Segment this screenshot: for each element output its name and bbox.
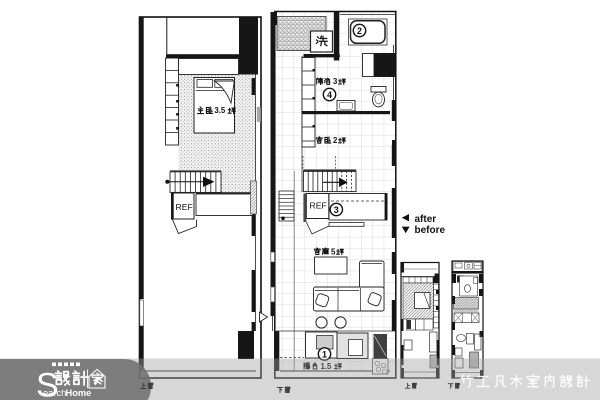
svg-text:5: 5 bbox=[331, 247, 336, 256]
svg-text:3: 3 bbox=[334, 205, 339, 215]
svg-text:after: after bbox=[415, 214, 437, 225]
svg-text:2: 2 bbox=[357, 26, 362, 36]
svg-text:earch: earch bbox=[43, 388, 66, 398]
svg-text:2: 2 bbox=[333, 136, 338, 145]
svg-text:1: 1 bbox=[322, 349, 327, 359]
svg-text:REF: REF bbox=[176, 202, 193, 212]
svg-text:3.5: 3.5 bbox=[214, 106, 226, 115]
svg-text:1.5: 1.5 bbox=[321, 362, 333, 371]
svg-text:Home: Home bbox=[66, 388, 92, 398]
svg-text:before: before bbox=[415, 225, 446, 236]
svg-text:4: 4 bbox=[327, 90, 332, 100]
svg-text:3: 3 bbox=[333, 77, 338, 86]
svg-text:REF: REF bbox=[310, 201, 327, 211]
